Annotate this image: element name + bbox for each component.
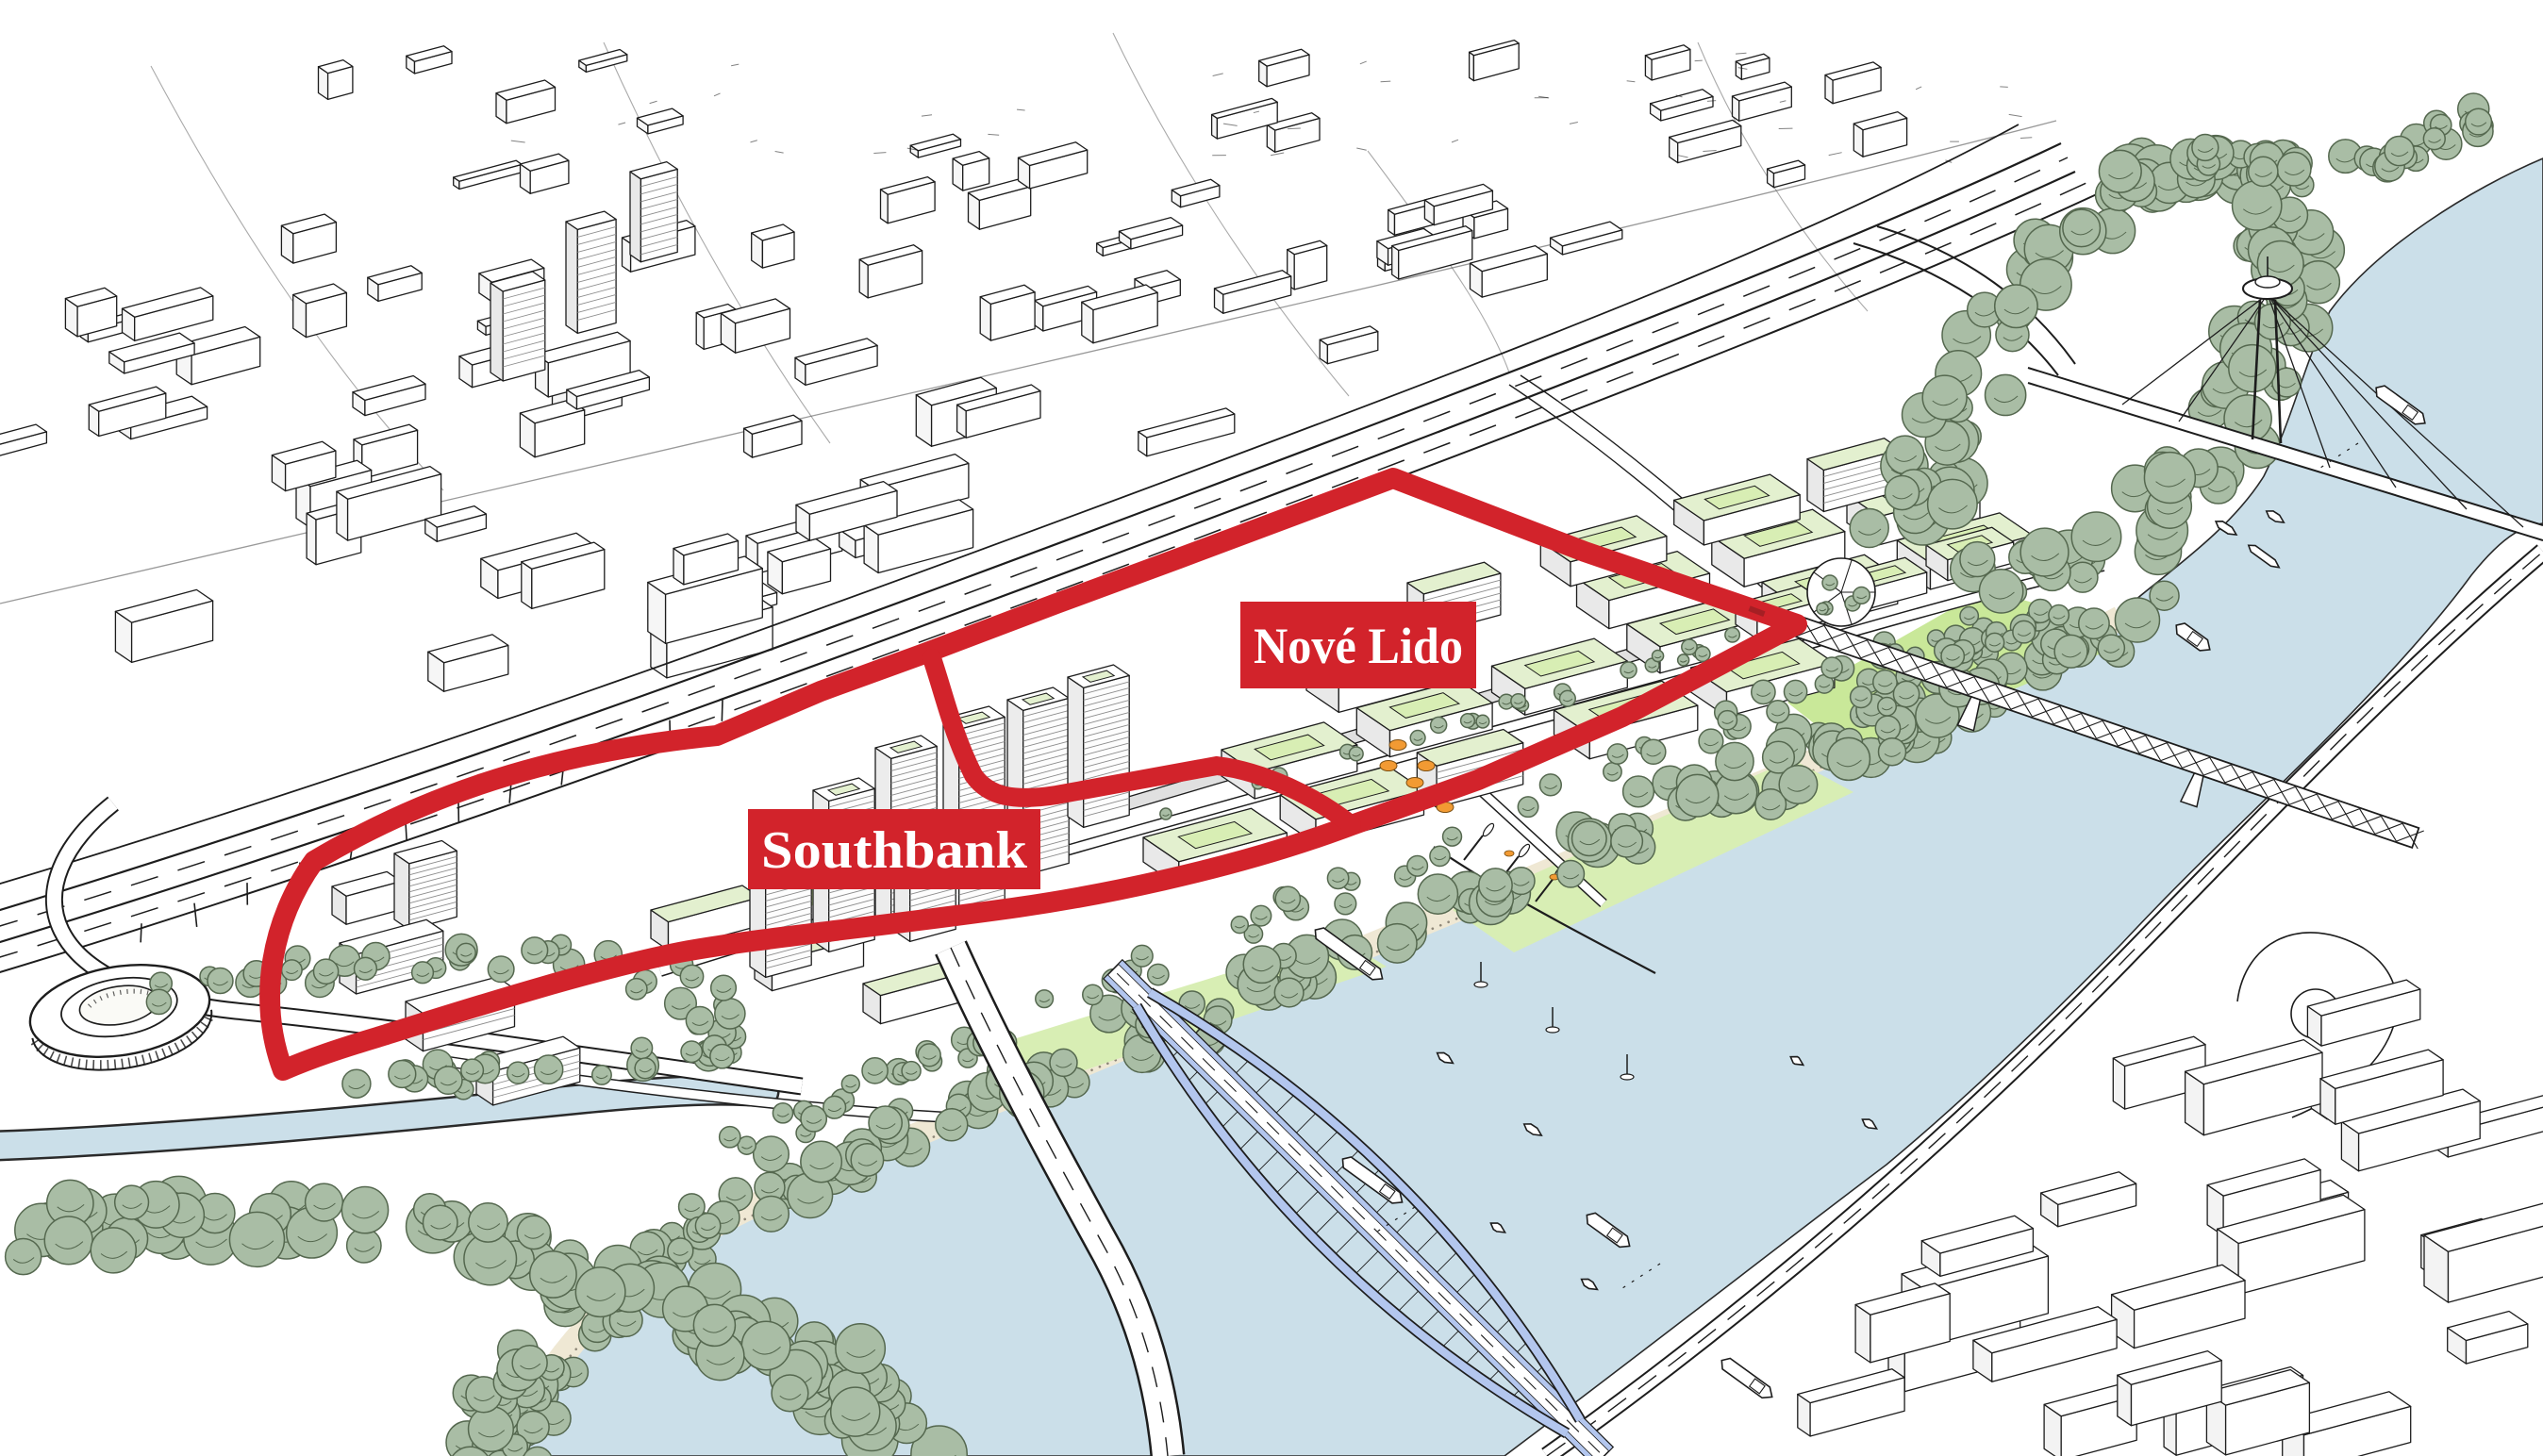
existing-city-sketch xyxy=(0,33,2056,691)
label-southbank-text: Southbank xyxy=(761,821,1028,880)
label-nove-lido-text: Nové Lido xyxy=(1254,618,1463,674)
label-southbank: Southbank xyxy=(748,809,1040,889)
side-channel-water xyxy=(0,1090,764,1146)
stadium xyxy=(24,953,219,1083)
river-layer xyxy=(0,158,2543,1456)
scene-svg: Nové Lido Southbank xyxy=(0,0,2543,1456)
masterplan-illustration: Nové Lido Southbank xyxy=(0,0,2543,1456)
label-nove-lido: Nové Lido xyxy=(1240,602,1476,688)
